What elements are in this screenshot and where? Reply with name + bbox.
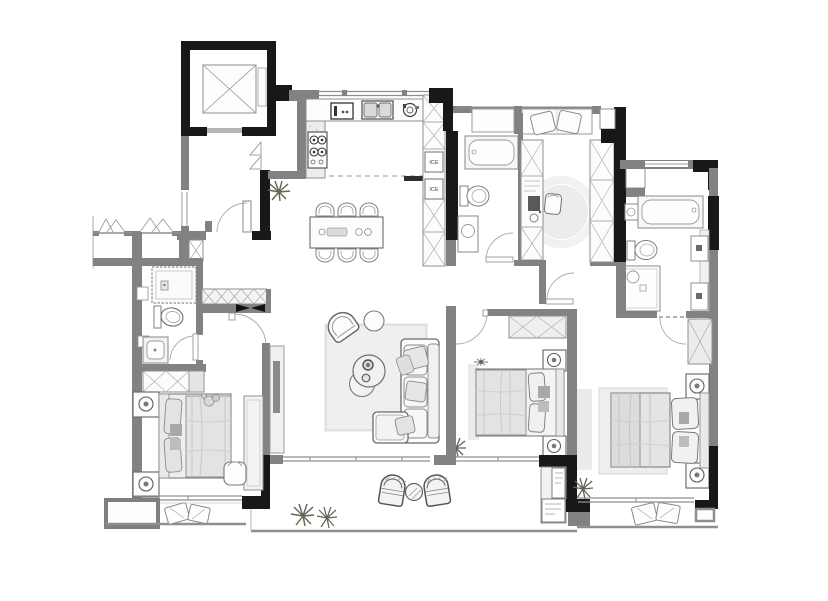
svg-text:ICE: ICE — [429, 160, 439, 166]
svg-text:ICE: ICE — [429, 187, 439, 193]
